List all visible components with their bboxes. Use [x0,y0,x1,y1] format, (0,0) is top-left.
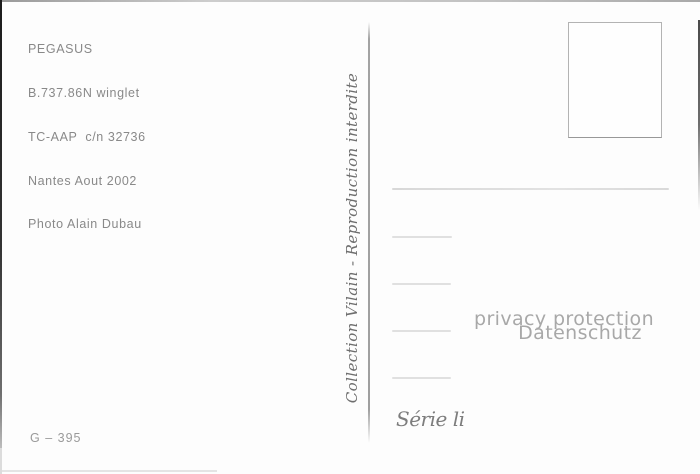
stamp-box [568,22,662,138]
catalog-number: G – 395 [30,431,81,445]
collection-credit-vertical-text: Collection Vilain - Reproduction interdi… [343,73,361,403]
address-line [392,330,451,332]
address-line [392,283,451,285]
address-line [392,188,669,190]
series-label: Série li [396,407,464,431]
scan-edge-top [0,0,700,2]
address-line [392,377,451,379]
info-line-aircraft: B.737.86N winglet [28,86,146,101]
center-divider-line [368,22,370,443]
address-line [392,236,452,238]
info-line-photographer: Photo Alain Dubau [28,217,146,232]
scan-edge-bottom [2,470,217,472]
info-line-registration: TC-AAP c/n 32736 [28,130,146,145]
photo-info-block: PEGASUS B.737.86N winglet TC-AAP c/n 327… [28,13,146,247]
info-line-location-date: Nantes Aout 2002 [28,174,146,189]
info-line-title: PEGASUS [28,42,146,57]
privacy-watermark: privacy protection Datenschutz [448,312,680,340]
privacy-watermark-line2: Datenschutz [464,326,696,340]
scan-edge-left [0,0,2,448]
